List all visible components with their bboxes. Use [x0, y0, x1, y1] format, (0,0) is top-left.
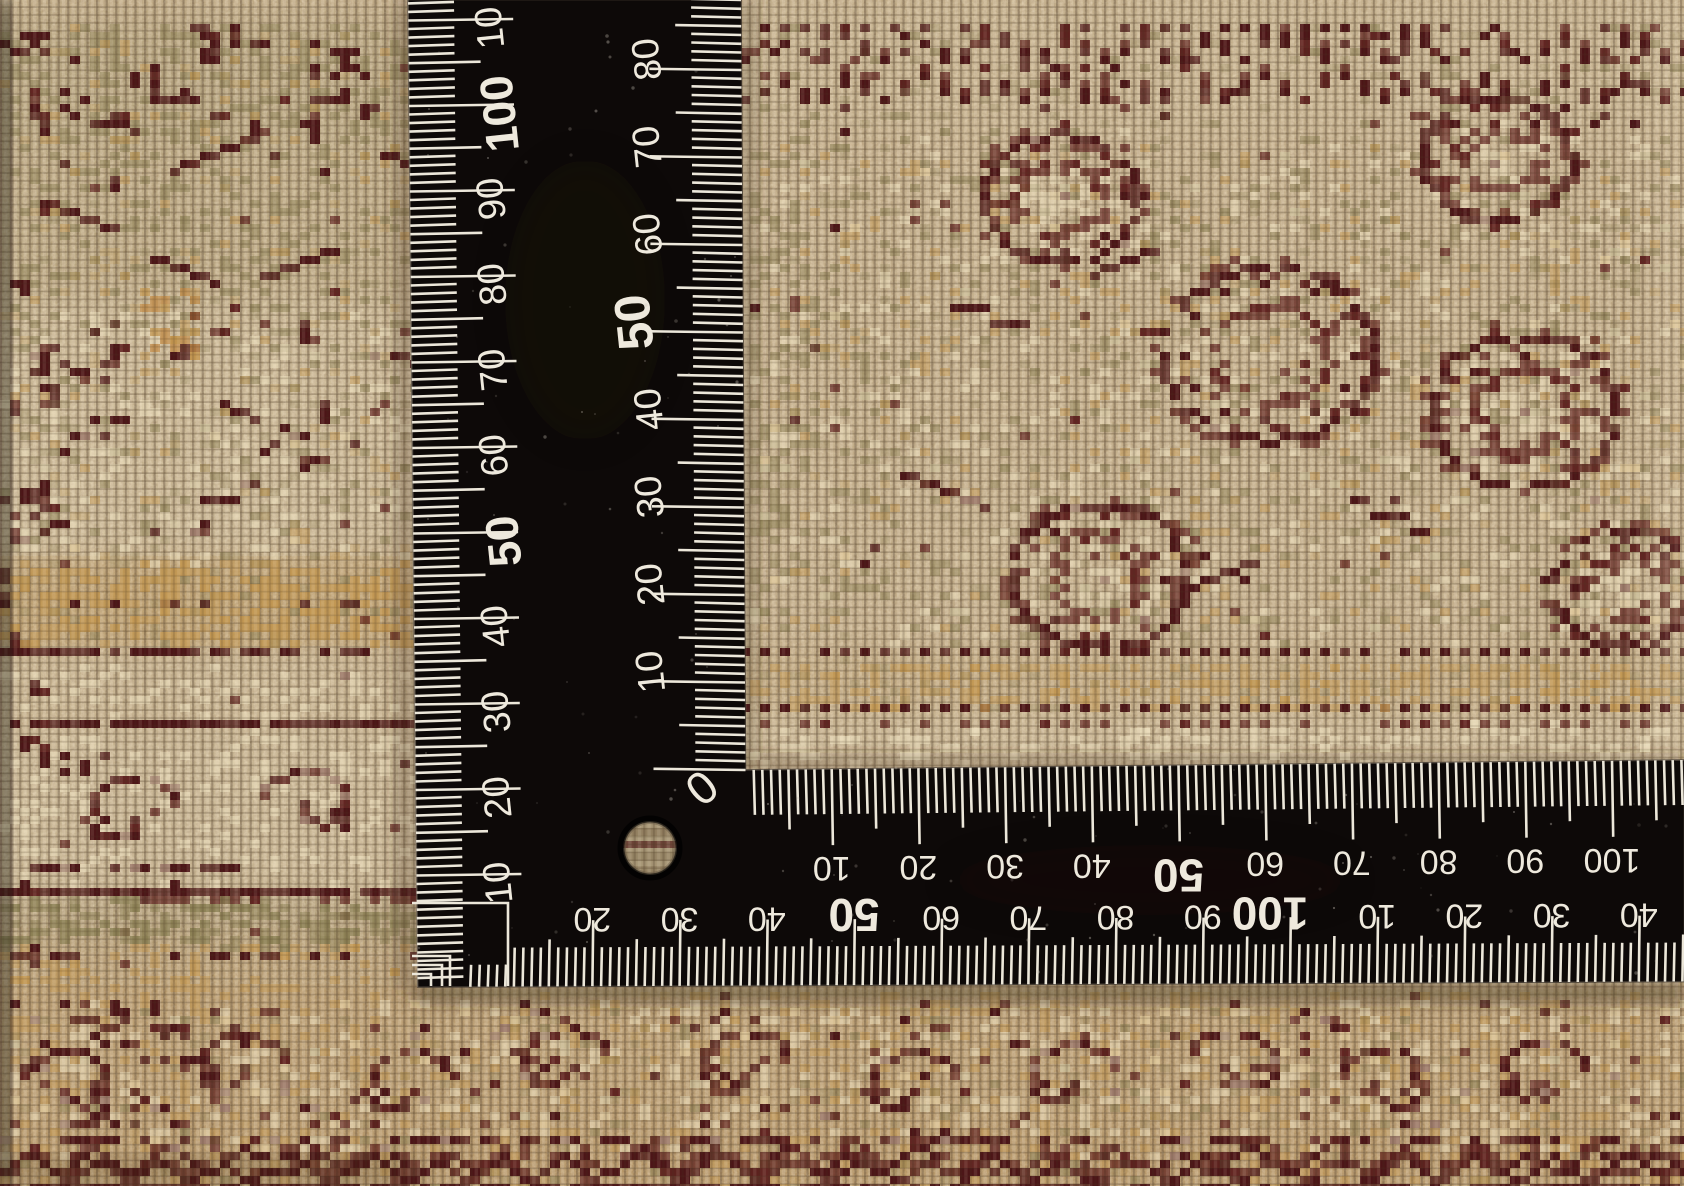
svg-text:70: 70 [1009, 898, 1047, 936]
svg-text:50: 50 [603, 292, 665, 353]
svg-text:90: 90 [1184, 898, 1222, 936]
svg-text:100: 100 [1232, 887, 1309, 939]
svg-text:20: 20 [627, 561, 673, 607]
svg-text:60: 60 [625, 211, 671, 257]
svg-text:50: 50 [1153, 849, 1204, 901]
svg-text:60: 60 [922, 899, 960, 937]
svg-text:70: 70 [625, 124, 671, 170]
svg-text:20: 20 [573, 900, 611, 938]
svg-text:40: 40 [626, 386, 672, 432]
svg-text:100: 100 [469, 73, 529, 155]
svg-text:20: 20 [475, 774, 521, 820]
svg-text:30: 30 [474, 689, 520, 735]
svg-text:40: 40 [748, 900, 786, 938]
svg-text:10: 10 [813, 849, 851, 887]
svg-text:50: 50 [475, 513, 532, 569]
svg-text:10: 10 [475, 860, 521, 906]
svg-text:20: 20 [1445, 897, 1483, 935]
svg-text:40: 40 [1073, 846, 1111, 884]
svg-text:90: 90 [469, 176, 515, 222]
svg-text:80: 80 [1420, 843, 1458, 881]
svg-text:30: 30 [627, 474, 673, 520]
svg-text:30: 30 [661, 900, 699, 938]
svg-text:90: 90 [1506, 842, 1544, 880]
svg-text:100: 100 [1584, 841, 1641, 879]
svg-text:80: 80 [1097, 898, 1135, 936]
svg-text:40: 40 [1620, 896, 1658, 934]
svg-text:50: 50 [828, 889, 879, 941]
svg-text:30: 30 [1533, 896, 1571, 934]
svg-text:60: 60 [1246, 845, 1284, 883]
svg-text:40: 40 [473, 603, 519, 649]
svg-text:70: 70 [470, 347, 516, 393]
svg-text:20: 20 [899, 848, 937, 886]
svg-text:70: 70 [1333, 844, 1371, 882]
svg-text:60: 60 [471, 432, 517, 478]
svg-text:80: 80 [470, 261, 516, 307]
svg-text:10: 10 [628, 649, 674, 695]
svg-text:80: 80 [624, 36, 670, 82]
svg-text:30: 30 [986, 847, 1024, 885]
svg-text:10: 10 [1358, 897, 1396, 935]
svg-text:10: 10 [467, 5, 513, 51]
